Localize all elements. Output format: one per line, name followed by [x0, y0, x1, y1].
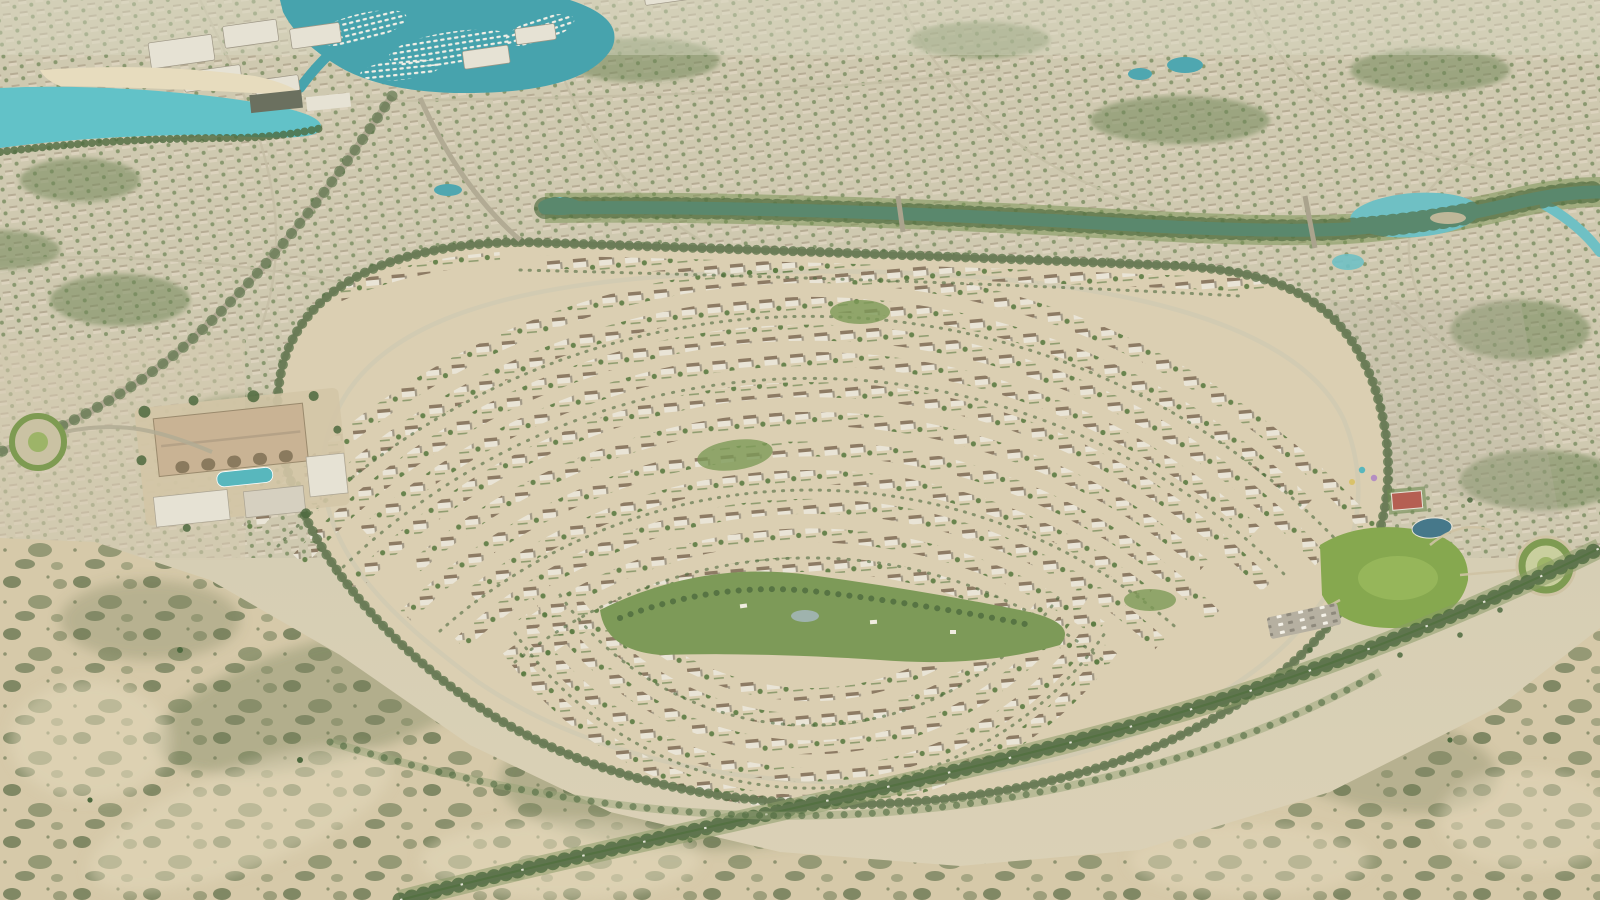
park-pond — [791, 610, 819, 622]
park-lawn-highlight — [1358, 556, 1438, 600]
canal-pond — [1332, 254, 1364, 270]
background-pond — [434, 184, 462, 196]
sports-court — [1391, 491, 1422, 511]
aerial-render-canvas — [0, 0, 1600, 900]
canal-island — [1430, 212, 1466, 224]
background-pond — [1128, 68, 1152, 80]
background-pond — [1167, 57, 1203, 73]
shade-umbrella — [1349, 479, 1355, 485]
left-roundabout-center — [28, 432, 48, 452]
pocket-park — [830, 300, 890, 324]
aerial-render — [0, 0, 1600, 900]
clubhouse-annex — [306, 453, 348, 497]
shade-umbrella — [1371, 475, 1377, 481]
pocket-park — [1124, 589, 1176, 611]
shade-umbrella — [1359, 467, 1365, 473]
